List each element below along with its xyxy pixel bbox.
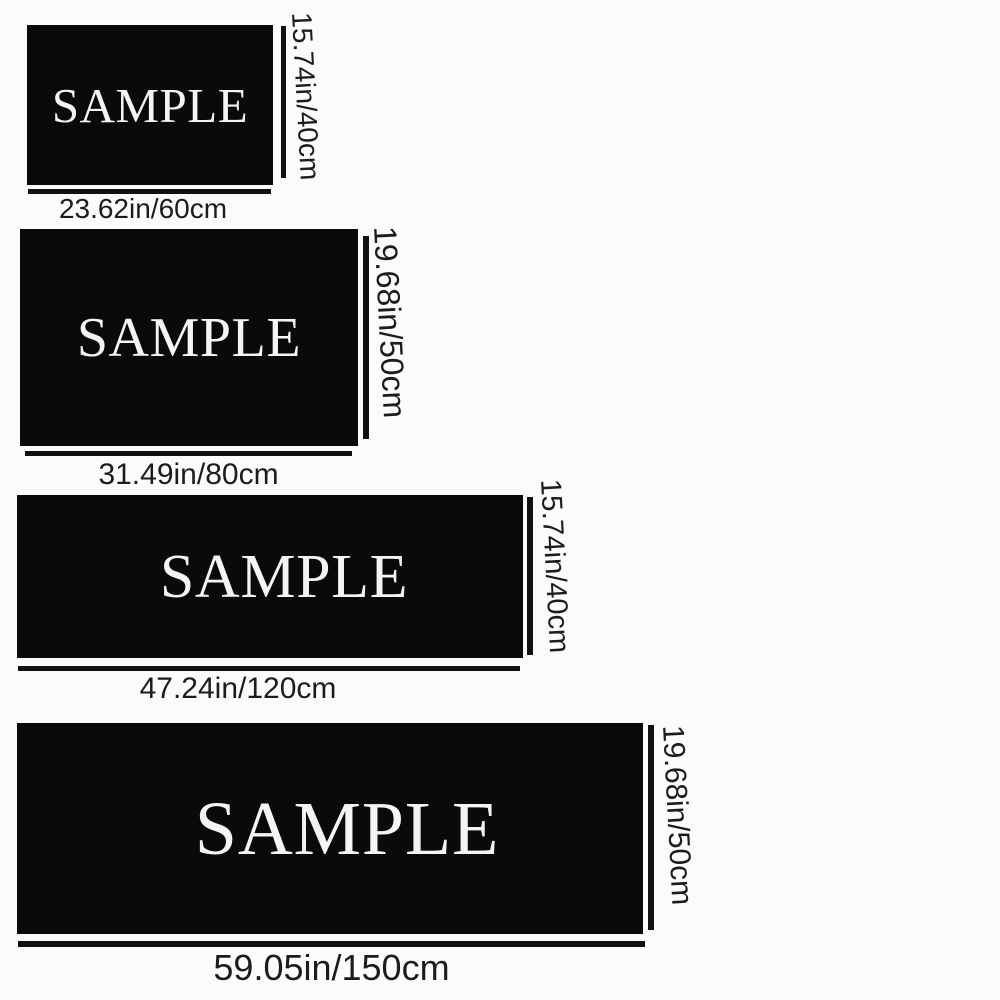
sample-watermark: SAMPLE [52, 81, 248, 130]
swatch-120x40: SAMPLE [17, 495, 523, 658]
height-dimension-label: 19.68in/50cm [369, 225, 411, 419]
sample-watermark: SAMPLE [161, 791, 499, 867]
size-chart: SAMPLE 23.62in/60cm 15.74in/40cm SAMPLE … [0, 0, 1000, 1000]
swatch-80x50: SAMPLE [20, 229, 358, 446]
swatch-60x40: SAMPLE [27, 25, 273, 185]
height-dimension-label: 15.74in/40cm [535, 478, 573, 653]
height-measure-line [281, 26, 286, 178]
width-measure-line [18, 666, 520, 671]
height-dimension-label: 15.74in/40cm [287, 12, 324, 181]
height-measure-line [527, 497, 533, 655]
sample-watermark: SAMPLE [132, 546, 408, 608]
height-dimension-label: 19.68in/50cm [657, 724, 696, 905]
width-dimension-label: 47.24in/120cm [18, 672, 458, 705]
width-measure-line [25, 451, 352, 456]
width-dimension-label: 31.49in/80cm [25, 458, 352, 491]
height-measure-line [648, 725, 654, 930]
sample-watermark: SAMPLE [77, 310, 301, 366]
swatch-150x50: SAMPLE [17, 723, 643, 934]
width-dimension-label: 23.62in/60cm [28, 194, 258, 225]
width-dimension-label: 59.05in/150cm [18, 948, 645, 988]
